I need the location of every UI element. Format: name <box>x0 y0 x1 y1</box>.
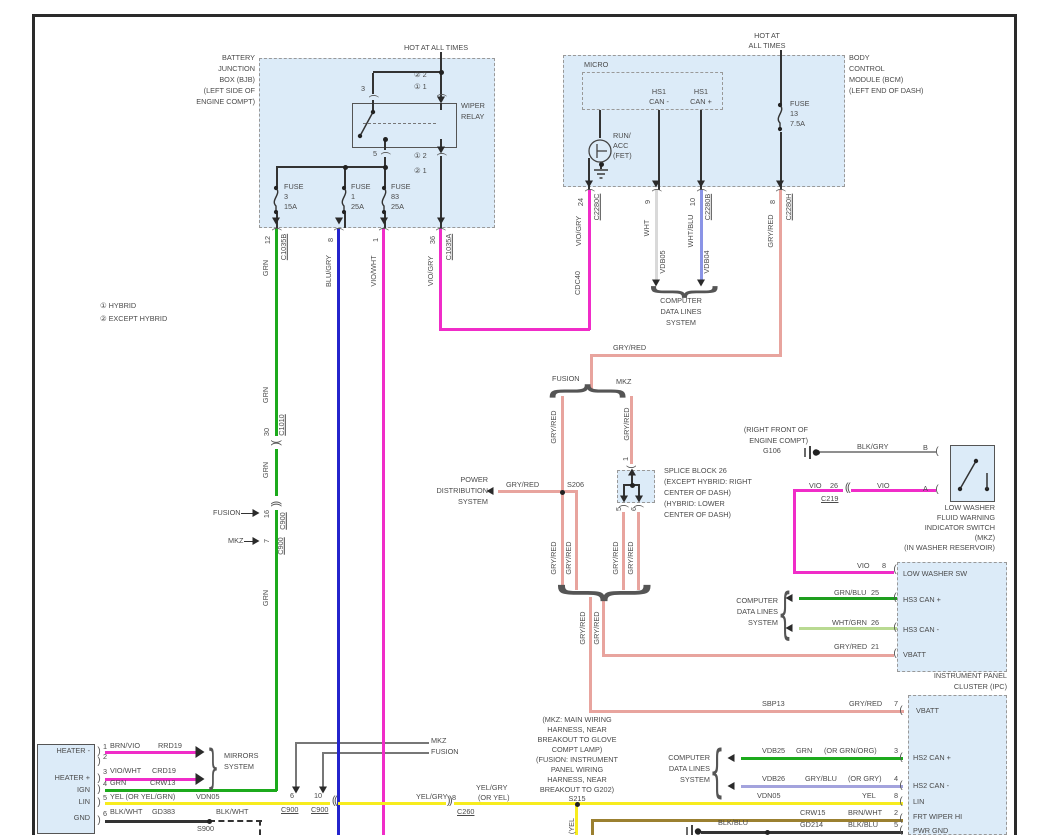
pwr-gnd-label: PWR GND <box>913 827 948 835</box>
right-front-of-label: (RIGHT FRONT OF <box>744 426 808 434</box>
gd383-label: GD383 <box>152 808 175 816</box>
crd19-label: CRD19 <box>152 767 176 775</box>
mkz-label: MKZ <box>431 737 446 745</box>
except-hybrid-label: ② EXCEPT HYBRID <box>100 315 167 323</box>
2-label: ② 2 <box>414 71 427 79</box>
acc-label: ACC <box>613 142 628 150</box>
blkwht-hd <box>209 820 262 822</box>
arrow-icon <box>776 181 784 188</box>
viogry-h <box>439 328 590 331</box>
3-label: 3 <box>894 747 898 755</box>
15a-label: 15A <box>284 203 297 211</box>
splice-out6 <box>637 512 640 590</box>
or-gry-label: (OR GRY) <box>848 775 882 783</box>
5-label: 5 <box>894 821 898 829</box>
gryred-v1 <box>779 190 782 357</box>
yel-h2 <box>338 802 446 805</box>
viogry-v2 <box>588 190 591 330</box>
computer-label: COMPUTER <box>668 754 710 762</box>
fusion-label: FUSION <box>431 748 459 756</box>
battery-label: BATTERY <box>222 54 255 62</box>
low-washer-sw-label: LOW WASHER SW <box>903 570 967 578</box>
10-label: 10 <box>314 792 322 800</box>
1-label: 1 <box>103 743 107 751</box>
c1035b-label: C1035B <box>280 234 288 260</box>
gry-red-label: GRY/RED <box>627 541 635 574</box>
relay-pin3-a <box>372 73 374 94</box>
2-label: 2 <box>894 809 898 817</box>
harness-near-label: HARNESS, NEAR <box>547 726 607 734</box>
25a-label: 25A <box>391 203 404 211</box>
arrow-icon <box>585 181 593 188</box>
yel-or-yel-grn-label: YEL (OR YEL/GRN) <box>110 793 175 801</box>
wiper-label: WIPER <box>461 102 485 110</box>
gryred-h1 <box>590 354 781 357</box>
arrow-icon <box>652 280 660 287</box>
6-label: 6 <box>103 810 107 818</box>
c900-label: C900 <box>279 512 287 529</box>
c900-label: C900 <box>281 806 298 814</box>
all-times-label: ALL TIMES <box>749 42 786 50</box>
left-end-of-dash-label: (LEFT END OF DASH) <box>849 87 923 95</box>
bcm-fuse-a <box>780 50 782 104</box>
arrow-icon <box>380 218 388 225</box>
13-label: 13 <box>790 110 798 118</box>
washer-switch-contact-icon <box>952 449 994 499</box>
mkz-label: MKZ <box>228 537 243 545</box>
junction-dot <box>383 165 388 170</box>
or-grn-org-label: (OR GRN/ORG) <box>824 747 877 755</box>
rrd19-label: RRD19 <box>158 742 182 750</box>
6-label: 6 <box>630 507 638 511</box>
c1035a-label: C1035A <box>445 234 453 260</box>
system-label: SYSTEM <box>748 619 778 627</box>
24-label: 24 <box>577 198 585 206</box>
c2280b-label: C2280B <box>704 194 712 220</box>
crw15-label: CRW15 <box>800 809 825 817</box>
fuse-icon <box>379 185 389 215</box>
grn-label: GRN <box>262 260 270 276</box>
vio-label: VIO <box>809 482 822 490</box>
viowht-v <box>382 228 385 835</box>
gry-red-label: GRY/RED <box>613 344 646 352</box>
frame-top <box>32 14 1016 17</box>
a-label: A <box>923 485 928 493</box>
arrow-icon <box>697 280 705 287</box>
junction-dot <box>560 490 565 495</box>
arrow-icon <box>620 496 628 503</box>
gry-red-label: GRY/RED <box>550 541 558 574</box>
fuse-icon <box>775 102 785 132</box>
hs2-can-label: HS2 CAN + <box>913 754 951 762</box>
brnvio-h <box>105 751 197 754</box>
36-label: 36 <box>429 236 437 244</box>
viogry-v1 <box>439 228 442 330</box>
connector-pin-icon: ) <box>97 774 100 784</box>
blkblu-h <box>701 831 903 834</box>
junction-dot <box>630 483 635 488</box>
heater-label: HEATER + <box>55 774 90 782</box>
frame-right <box>1014 14 1017 835</box>
fuse-label: FUSE <box>790 100 809 108</box>
center-of-dash-label: CENTER OF DASH) <box>664 511 731 519</box>
wht-label: WHT <box>643 220 651 237</box>
gry-red-label: GRY/RED <box>834 643 867 651</box>
junction-dot <box>765 830 770 835</box>
vdb05-label: VDB05 <box>659 250 667 273</box>
1-label: 1 <box>351 193 355 201</box>
gryred-vbatt21 <box>602 654 894 657</box>
fet-in <box>599 110 601 138</box>
body-label: BODY <box>849 54 870 62</box>
hybrid-lower-label: (HYBRID: LOWER <box>664 500 725 508</box>
computer-label: COMPUTER <box>736 597 778 605</box>
blu-gry-label: BLU/GRY <box>325 255 333 287</box>
grn-label: GRN <box>262 590 270 606</box>
26-label: 26 <box>830 482 838 490</box>
connector-pin-icon: ( <box>378 227 388 230</box>
control-label: CONTROL <box>849 65 885 73</box>
arrow-icon <box>628 469 636 476</box>
harness-near-label: HARNESS, NEAR <box>547 776 607 784</box>
system-label: SYSTEM <box>458 498 488 506</box>
compt-lamp-label: COMPT LAMP) <box>552 746 603 754</box>
micro-label: MICRO <box>584 61 608 69</box>
connector-pin-icon: ( <box>696 188 706 191</box>
vdb04-label: VDB04 <box>703 250 711 273</box>
wiring-diagram: ((((((((((((((((((((((((((()))))))((((()… <box>0 0 1047 835</box>
box-bjb-label: BOX (BJB) <box>219 76 255 84</box>
1-label: ① 1 <box>414 83 427 91</box>
vio-label: VIO <box>877 482 890 490</box>
brn-wht-label: BRN/WHT <box>848 809 882 817</box>
hs1-can-plus <box>700 110 702 190</box>
connector-pin-icon: ) <box>97 785 100 795</box>
blkwht-vd <box>259 820 261 835</box>
fuse1-b <box>344 213 346 228</box>
ground-tap-icon <box>802 445 820 460</box>
grn-label: GRN <box>262 387 270 403</box>
frame-left <box>32 14 35 835</box>
1-label: 1 <box>622 457 630 461</box>
junction-dot <box>383 137 388 142</box>
4-label: 4 <box>894 775 898 783</box>
system-label: SYSTEM <box>680 776 710 784</box>
data-lines-label: DATA LINES <box>669 765 710 773</box>
8-label: 8 <box>894 792 898 800</box>
c2280h-label: C2280H <box>785 194 793 221</box>
gry-red-label: GRY/RED <box>612 541 620 574</box>
c2280c-label: C2280C <box>593 194 601 221</box>
grn-label: GRN <box>262 462 270 478</box>
power-label: POWER <box>460 476 488 484</box>
4-label: 4 <box>103 780 107 788</box>
25-label: 25 <box>871 589 879 597</box>
1-label: ② 1 <box>414 167 427 175</box>
yel-gry-label: YEL/GRY <box>416 793 448 801</box>
7-label: 7 <box>894 700 898 708</box>
connector-pin-icon: ( <box>651 188 661 191</box>
connector-pin-icon: ( <box>899 706 902 716</box>
gry-red-label: GRY/RED <box>550 410 558 443</box>
module-bcm-label: MODULE (BCM) <box>849 76 903 84</box>
arrow-icon <box>437 147 445 154</box>
c219-label: C219 <box>821 495 838 503</box>
left-side-of-label: (LEFT SIDE OF <box>204 87 255 95</box>
panel-wiring-label: PANEL WIRING <box>551 766 603 774</box>
junction-dot <box>439 70 444 75</box>
connector-pin-icon: ( <box>899 753 902 763</box>
junction-dot <box>207 819 212 824</box>
distribution-label: DISTRIBUTION <box>437 487 488 495</box>
coil-top <box>440 103 442 110</box>
connector-pin-icon: ( <box>899 797 902 807</box>
connector-pin-icon: ( <box>271 227 281 230</box>
fuse-label: FUSE <box>391 183 410 191</box>
connector-pin-icon: ( <box>584 188 594 191</box>
fet-transistor-icon <box>588 138 612 164</box>
connector-pin-icon: ) <box>97 816 100 826</box>
connector-pin-icon: ( <box>899 781 902 791</box>
grn-label: GRN <box>796 747 812 755</box>
arrow-icon <box>652 181 660 188</box>
8-label: 8 <box>882 562 886 570</box>
blk-blu-label: BLK/BLU <box>718 819 748 827</box>
12-label: 12 <box>264 236 272 244</box>
data-lines-label: DATA LINES <box>737 608 778 616</box>
arrow-icon <box>196 746 205 758</box>
fuse-icon <box>339 185 349 215</box>
connector-pin-icon: ( <box>893 593 896 603</box>
hot-feed <box>440 52 442 98</box>
except-hybrid-right-label: (EXCEPT HYBRID: RIGHT <box>664 478 752 486</box>
arrow-icon <box>728 782 735 790</box>
arrow-icon <box>253 509 260 517</box>
vdn05-label: VDN05 <box>196 793 220 801</box>
instrument-panel-label: INSTRUMENT PANEL <box>934 672 1007 680</box>
vbatt-label: VBATT <box>903 651 926 659</box>
connector-pin-icon: ( <box>380 151 390 154</box>
arrow-icon <box>196 773 205 785</box>
hs2-grn-h <box>741 757 903 760</box>
inline-connector-icon: (( <box>271 501 282 505</box>
c260-label: C260 <box>457 808 474 816</box>
vio-gry-label: VIO/GRY <box>427 256 435 286</box>
5-label: 5 <box>103 794 107 802</box>
fusion-label: FUSION <box>552 375 580 383</box>
gryred-vbatt7 <box>589 710 904 713</box>
data-lines-label: DATA LINES <box>660 308 701 316</box>
gry-blu-label: GRY/BLU <box>805 775 837 783</box>
connector-pin-icon: ( <box>935 447 938 457</box>
arrow-icon <box>786 624 793 632</box>
arrow-icon <box>437 218 445 225</box>
system-label: SYSTEM <box>224 763 254 771</box>
lin-label: LIN <box>79 798 90 806</box>
yel-h3 <box>454 802 903 805</box>
blugry-v <box>337 228 340 835</box>
arrow-icon <box>786 594 793 602</box>
engine-compt-label: ENGINE COMPT) <box>196 98 255 106</box>
grn-v2 <box>275 449 278 496</box>
5-label: 5 <box>615 507 623 511</box>
s900-label: S900 <box>197 825 214 833</box>
hs3-can-label: HS3 CAN + <box>903 596 941 604</box>
center-of-dash-label: CENTER OF DASH) <box>664 489 731 497</box>
ign-label: IGN <box>77 786 90 794</box>
connector-pin-icon: ( <box>368 94 378 97</box>
fusion-arrow-tail <box>241 513 253 514</box>
7-label: 7 <box>263 539 271 543</box>
brace-icon: { <box>550 580 650 607</box>
junction-dot <box>343 165 348 170</box>
fet-label: (FET) <box>613 152 632 160</box>
vdn05-label: VDN05 <box>757 792 781 800</box>
vio-label: VIO <box>857 562 870 570</box>
vdb25-label: VDB25 <box>762 747 785 755</box>
c900-label: C900 <box>277 537 285 554</box>
relay-branch-h <box>373 71 442 73</box>
wht-blu-label: WHT/BLU <box>687 215 695 248</box>
mkz-leader-h <box>295 742 429 744</box>
system-label: SYSTEM <box>666 319 696 327</box>
gry-red-label: GRY/RED <box>565 541 573 574</box>
ground-tap-icon <box>684 824 702 835</box>
splice-block-26-label: SPLICE BLOCK 26 <box>664 467 727 475</box>
yel-label: YEL <box>862 792 876 800</box>
connector-pin-icon: ( <box>775 188 785 191</box>
mirrors-label: MIRRORS <box>224 752 258 760</box>
connector-pin-icon: ( <box>893 623 896 633</box>
connector-pin-icon: ) <box>97 757 100 767</box>
connector-pin-icon: ( <box>899 814 902 824</box>
blk-wht-label: BLK/WHT <box>110 808 142 816</box>
hs2-can-label: HS2 CAN - <box>913 782 949 790</box>
hot-at-label: HOT AT <box>754 32 780 40</box>
wht-grn-label: WHT/GRN <box>832 619 867 627</box>
hot-at-all-times-label: HOT AT ALL TIMES <box>404 44 468 52</box>
fuse-bus <box>276 166 386 168</box>
relay-switch-icon <box>356 105 378 141</box>
inline-connector-icon: (( <box>332 796 336 807</box>
25a-label: 25A <box>351 203 364 211</box>
gryred-fusion-br <box>561 396 564 492</box>
vio-wht-label: VIO/WHT <box>370 255 378 286</box>
2-label: ① 2 <box>414 152 427 160</box>
3-label: 3 <box>284 193 288 201</box>
cdc40-label: CDC40 <box>574 271 582 295</box>
crw13-label: CRW13 <box>150 779 175 787</box>
indicator-switch-label: INDICATOR SWITCH <box>925 524 995 532</box>
ground-icon <box>593 168 609 180</box>
gry-red-label: GRY/RED <box>506 481 539 489</box>
hs3-can-label: HS3 CAN - <box>903 626 939 634</box>
vdb26-label: VDB26 <box>762 775 785 783</box>
connector-pin-icon: ( <box>333 227 343 230</box>
frt-wiper-hi-label: FRT WIPER HI <box>913 813 962 821</box>
lin-label: LIN <box>913 798 924 806</box>
hs2-grybl-h <box>741 785 903 788</box>
connector-pin-icon: ( <box>893 649 896 659</box>
fusion-instrument-label: (FUSION: INSTRUMENT <box>536 756 618 764</box>
grn-label: GRN <box>110 779 126 787</box>
arrow-icon <box>335 218 343 225</box>
s206-label: S206 <box>567 481 584 489</box>
3-label: 3 <box>103 768 107 776</box>
7-5a-label: 7.5A <box>790 120 805 128</box>
8-label: 8 <box>327 238 335 242</box>
vio-v <box>793 489 796 573</box>
30-label: 30 <box>263 428 271 436</box>
blkwht-h <box>105 820 209 823</box>
gnd-label: GND <box>74 814 90 822</box>
run-label: RUN/ <box>613 132 631 140</box>
g106-label: G106 <box>763 447 781 455</box>
vbatt-label: VBATT <box>916 707 939 715</box>
s215-label: S215 <box>568 795 585 803</box>
can-label: CAN + <box>690 98 712 106</box>
brace-icon: { <box>710 744 725 800</box>
connector-pin-icon: ( <box>893 565 896 575</box>
hs1-can-minus <box>658 110 660 190</box>
blk-blu-label: BLK/BLU <box>848 821 878 829</box>
8-label: 8 <box>452 794 456 802</box>
vio-h3 <box>793 571 894 574</box>
10-label: 10 <box>689 198 697 206</box>
arrow-icon <box>437 97 445 104</box>
fuse-label: FUSE <box>351 183 370 191</box>
arrow-icon <box>635 496 643 503</box>
83-label: 83 <box>391 193 399 201</box>
8-label: 8 <box>769 200 777 204</box>
inline-connector-icon: )( <box>271 440 282 444</box>
inline-connector-icon: (( <box>845 483 849 494</box>
mkz-main-wiring-label: (MKZ: MAIN WIRING <box>542 716 611 724</box>
cluster-ipc-label: CLUSTER (IPC) <box>954 683 1007 691</box>
5-label: 5 <box>373 150 377 158</box>
grn-blu-label: GRN/BLU <box>834 589 866 597</box>
mkz-label: (MKZ) <box>975 534 995 542</box>
c1010-label: C1010 <box>278 414 286 436</box>
b-label: B <box>923 444 928 452</box>
fusion-leader-v <box>322 752 324 788</box>
gry-red-label: GRY/RED <box>579 611 587 644</box>
arrow-icon <box>728 754 735 762</box>
arrow-icon <box>253 537 260 545</box>
hs1-label: HS1 <box>694 88 708 96</box>
can-label: CAN - <box>649 98 669 106</box>
or-yel-label: (OR YEL) <box>478 794 510 802</box>
s206-v2 <box>575 492 578 590</box>
junction-label: JUNCTION <box>218 65 255 73</box>
21-label: 21 <box>871 643 879 651</box>
breakout-to-glove-label: BREAKOUT TO GLOVE <box>537 736 616 744</box>
connector-pin-icon: ( <box>935 485 938 495</box>
6-label: 6 <box>290 792 294 800</box>
splice-out5 <box>622 512 625 590</box>
hs1-label: HS1 <box>652 88 666 96</box>
heater-label: HEATER - <box>56 747 90 755</box>
mkz-label: MKZ <box>616 378 631 386</box>
fuse-icon <box>271 185 281 215</box>
connector-pin-icon: ) <box>97 798 100 808</box>
16-label: 16 <box>263 510 271 518</box>
brnwht-v <box>591 819 594 835</box>
c900-label: C900 <box>311 806 328 814</box>
computer-label: COMPUTER <box>660 297 702 305</box>
gry-red-label: GRY/RED <box>849 700 882 708</box>
hybrid-label: ① HYBRID <box>100 302 136 310</box>
